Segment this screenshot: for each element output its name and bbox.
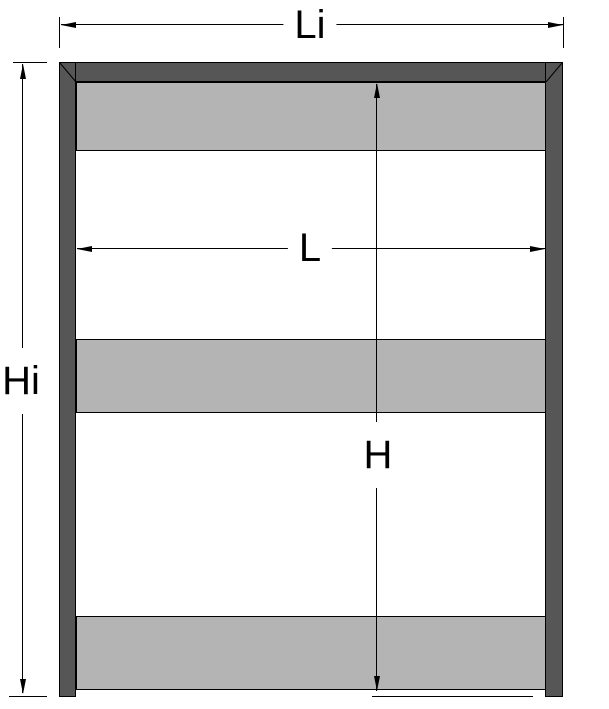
panel-middle <box>76 339 546 413</box>
dim-label-h: H <box>361 422 396 488</box>
dim-label-hi: Hi <box>0 348 43 414</box>
dim-hi-extension-bottom <box>9 696 47 697</box>
dim-h-extension-bottom <box>372 696 533 697</box>
panel-top <box>76 82 546 151</box>
panel-bottom <box>76 616 546 690</box>
dim-hi-arrowhead-bottom <box>20 679 26 694</box>
dim-label-li: Li <box>283 3 336 47</box>
dim-l-arrowhead-right <box>530 246 545 252</box>
dim-h-arrowhead-bottom <box>374 676 380 691</box>
dim-li-arrowhead-left <box>61 22 76 28</box>
dim-label-l: L <box>288 226 332 270</box>
dim-hi-arrowhead-top <box>20 64 26 79</box>
dim-h-arrowhead-top <box>374 83 380 98</box>
dim-li-arrowhead-right <box>548 22 563 28</box>
technical-drawing-canvas: Li Hi L H <box>0 0 609 709</box>
dim-li-extension-left <box>59 17 60 48</box>
frame-left-post <box>59 62 76 697</box>
dim-l-arrowhead-left <box>77 246 92 252</box>
dim-li-extension-right <box>563 17 564 48</box>
dim-h-line <box>376 84 377 691</box>
frame-top-rail <box>59 62 563 82</box>
frame-right-post <box>545 62 563 697</box>
dim-hi-extension-top <box>13 62 47 63</box>
